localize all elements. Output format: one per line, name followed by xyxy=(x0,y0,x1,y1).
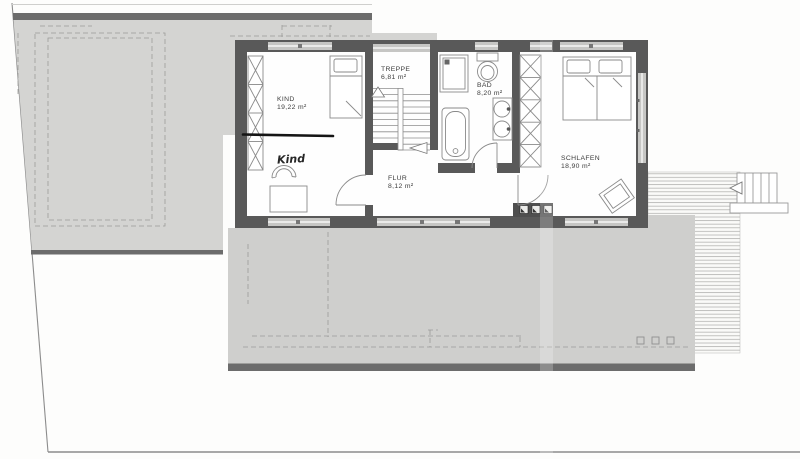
bed-kind xyxy=(330,56,362,118)
roof-edge-band xyxy=(228,364,695,372)
floor-plan-document: KIND 19,22 m² TREPPE 6,81 m² BAD 8,20 m²… xyxy=(0,0,800,459)
area-flur: 8,12 m² xyxy=(388,183,414,190)
roof-edge-band-bottom xyxy=(31,250,223,255)
toilet xyxy=(477,53,498,82)
area-bad: 8,20 m² xyxy=(477,90,503,97)
window-treppe-north xyxy=(373,44,430,52)
scan-fold-artifact xyxy=(540,0,553,459)
window-kind-north xyxy=(268,42,332,50)
area-kind: 19,22 m² xyxy=(277,104,307,111)
label-schlafen: SCHLAFEN xyxy=(561,155,600,162)
building: KIND 19,22 m² TREPPE 6,81 m² BAD 8,20 m²… xyxy=(235,40,648,228)
desk-kind xyxy=(270,186,307,212)
exterior-stairs xyxy=(730,173,788,213)
window-kind-south xyxy=(268,218,330,226)
handwritten-kind-label: Kind xyxy=(277,152,306,166)
stair-landing xyxy=(730,203,788,213)
double-bed xyxy=(563,57,631,120)
window-flur-south xyxy=(377,218,490,226)
label-treppe: TREPPE xyxy=(381,66,410,73)
label-bad: BAD xyxy=(477,82,492,89)
double-washbasin xyxy=(493,98,512,140)
wardrobe-schlafen xyxy=(520,55,541,167)
wardrobe-kind xyxy=(248,56,263,170)
floor-plan-drawing: KIND 19,22 m² TREPPE 6,81 m² BAD 8,20 m²… xyxy=(0,0,800,459)
lower-roof xyxy=(228,215,695,371)
label-flur: FLUR xyxy=(388,175,407,182)
stair-stringer xyxy=(398,88,403,150)
label-kind: KIND xyxy=(277,96,295,103)
roof-edge-band-top xyxy=(13,13,372,20)
window-schlafen-south xyxy=(565,218,628,226)
window-schlafen-north xyxy=(560,42,623,50)
area-schlafen: 18,90 m² xyxy=(561,163,591,170)
window-bad-north xyxy=(475,42,498,50)
bathtub xyxy=(442,108,469,160)
area-treppe: 6,81 m² xyxy=(381,74,407,81)
shower xyxy=(440,55,468,92)
marker-line xyxy=(243,135,333,137)
